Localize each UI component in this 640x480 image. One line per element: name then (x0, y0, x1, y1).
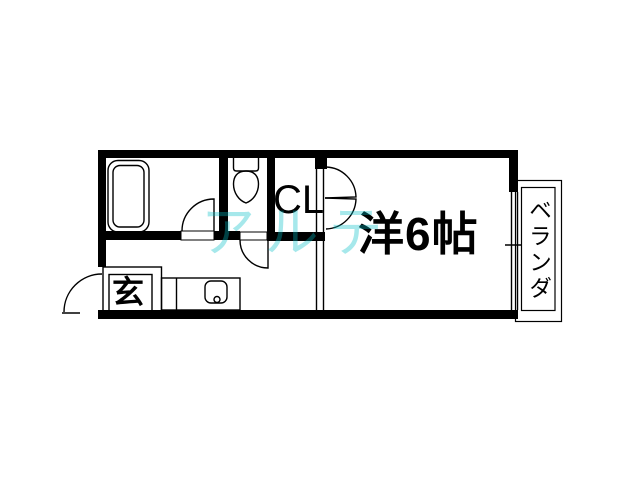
entrance-door-icon (62, 274, 102, 313)
wall-right-top-stub (509, 150, 518, 192)
kitchen-sink-icon (162, 278, 241, 310)
agency-watermark: アルテ (201, 206, 392, 260)
wall-top (98, 150, 518, 158)
balcony-window-icon (505, 192, 522, 310)
wall-left (98, 150, 106, 267)
wall-bottom (98, 310, 518, 319)
wall-bathroom-bottom (106, 231, 181, 240)
toilet-icon (234, 158, 259, 203)
entrance-label: 玄 (112, 276, 144, 308)
balcony-label: ベランダ (521, 189, 555, 310)
floorplan-canvas: 洋6帖 CL 玄 ベランダ アルテ (0, 0, 640, 480)
wall-closet-top-stub (315, 158, 327, 169)
bathtub-icon (108, 161, 149, 233)
